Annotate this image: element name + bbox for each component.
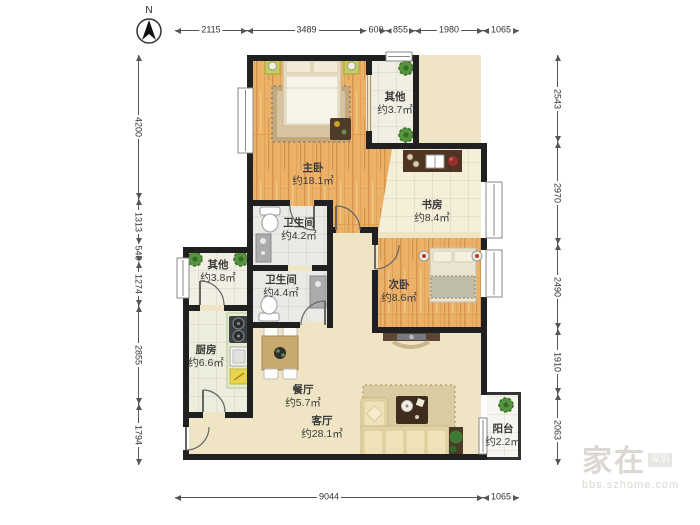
dim-left-5: 1794 [138, 404, 139, 465]
room-label-bath-lower: 卫生间约4.4㎡ [263, 274, 299, 300]
room-label-kitchen: 厨房约6.6㎡ [188, 344, 224, 370]
dim-top-2: 600 [366, 30, 386, 31]
plant-stand-living [449, 427, 463, 458]
bed-master [281, 56, 343, 126]
room-label-living: 客厅约28.1㎡ [301, 415, 342, 441]
watermark-logo: 家在 [582, 447, 646, 477]
room-label-bath-upper: 卫生间约4.2㎡ [281, 217, 317, 243]
toilet-upper [260, 207, 280, 232]
dim-right-1: 2970 [557, 142, 558, 244]
watermark-badge: 深圳 [648, 453, 672, 467]
shower-lower [310, 276, 326, 308]
floorplan-page: N [0, 0, 700, 525]
room-label-bedroom2: 次卧约8.6㎡ [381, 279, 417, 305]
room-label-balcony: 阳台约2.2㎡ [485, 423, 521, 449]
dim-bottom-0: 9044 [175, 497, 483, 498]
coffee-table [396, 396, 428, 424]
dim-right-3: 1910 [557, 329, 558, 394]
dim-left-4: 2855 [138, 306, 139, 404]
dim-top-4: 1980 [415, 30, 483, 31]
dim-bottom-1: 1065 [483, 497, 519, 498]
dim-right-4: 2063 [557, 394, 558, 465]
window-other-top [386, 52, 412, 61]
kitchen-counter [227, 313, 250, 388]
plant [234, 252, 248, 266]
desk-study [403, 150, 462, 172]
chair [264, 369, 278, 379]
plant [399, 128, 413, 142]
room-label-other-top: 其他约3.7㎡ [377, 91, 413, 117]
chair [283, 369, 297, 379]
watermark: 家在 深圳 bbs.szhome.com [582, 447, 700, 491]
dim-left-2: 540 [138, 244, 139, 262]
room-label-other-left: 其他约3.8㎡ [200, 259, 236, 285]
window-study-right [486, 182, 502, 238]
room-label-dining: 餐厅约5.7㎡ [285, 384, 321, 410]
dim-right-0: 2543 [557, 55, 558, 142]
window-other-left [177, 258, 189, 298]
plant [399, 61, 413, 75]
window-master-left [238, 88, 253, 153]
shower-upper [256, 234, 271, 262]
plant [499, 398, 513, 412]
side-table-master [330, 118, 351, 140]
dim-left-3: 1274 [138, 262, 139, 306]
window-bedroom2-right [486, 250, 502, 297]
room-label-master: 主卧约18.1㎡ [292, 162, 333, 188]
dim-top-3: 855 [386, 30, 415, 31]
dim-top-5: 1065 [483, 30, 519, 31]
dim-right-2: 2490 [557, 244, 558, 329]
room-label-study: 书房约8.4㎡ [414, 199, 450, 225]
dim-top-1: 3489 [247, 30, 366, 31]
dim-left-0: 4200 [138, 55, 139, 199]
dim-left-1: 1313 [138, 199, 139, 244]
dim-top-0: 2115 [175, 30, 247, 31]
watermark-url: bbs.szhome.com [582, 479, 700, 491]
